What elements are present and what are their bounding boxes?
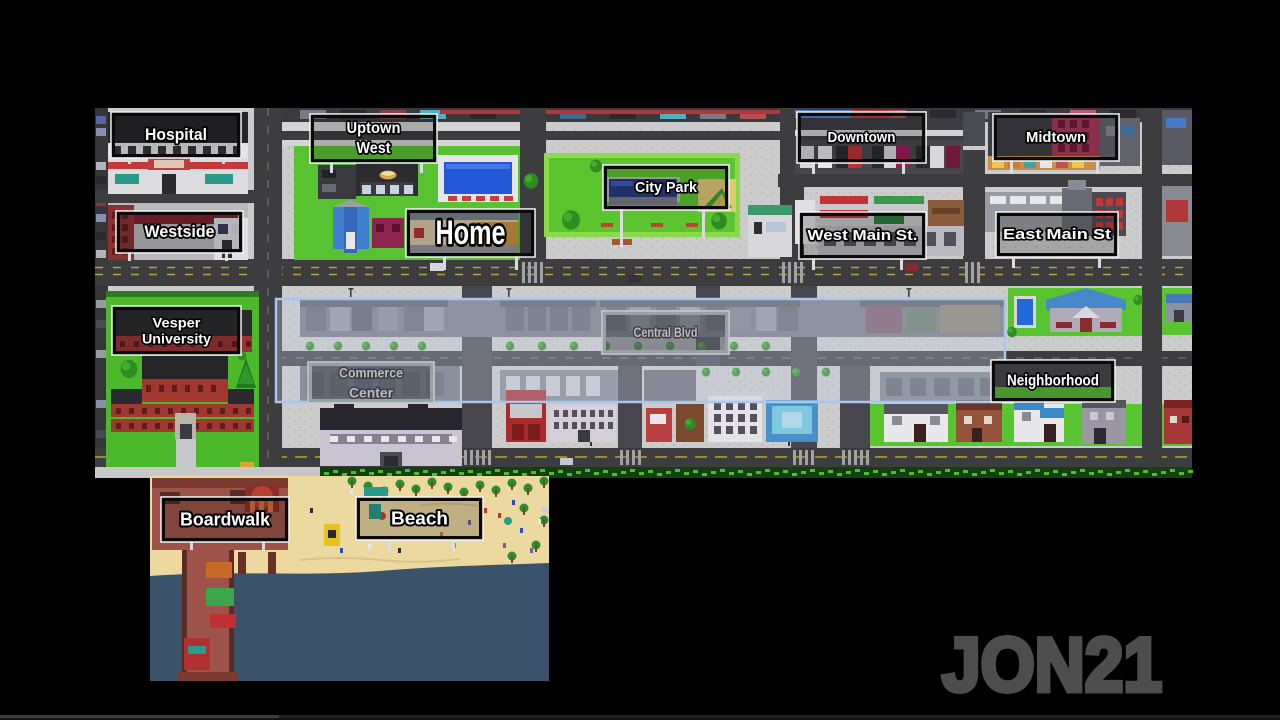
- svg-text:Central Blvd: Central Blvd: [634, 325, 698, 340]
- svg-text:Neighborhood: Neighborhood: [1007, 373, 1099, 390]
- svg-text:West: West: [357, 140, 392, 157]
- svg-text:Midtown: Midtown: [1026, 129, 1086, 146]
- svg-text:Boardwalk: Boardwalk: [180, 510, 271, 530]
- svg-text:Uptown: Uptown: [347, 120, 401, 137]
- svg-text:Center: Center: [349, 385, 394, 401]
- svg-text:Beach: Beach: [391, 509, 448, 529]
- svg-text:East Main St: East Main St: [1003, 226, 1111, 243]
- svg-text:Downtown: Downtown: [828, 129, 896, 146]
- svg-text:City Park: City Park: [635, 179, 698, 196]
- svg-text:Hospital: Hospital: [145, 126, 207, 144]
- svg-text:Westside: Westside: [145, 223, 215, 241]
- svg-text:Vesper: Vesper: [153, 315, 202, 331]
- svg-text:Home: Home: [436, 214, 506, 252]
- svg-text:West Main St.: West Main St.: [808, 227, 918, 244]
- svg-text:JON21: JON21: [942, 623, 1162, 708]
- svg-text:University: University: [142, 331, 211, 347]
- svg-text:Commerce: Commerce: [339, 365, 403, 381]
